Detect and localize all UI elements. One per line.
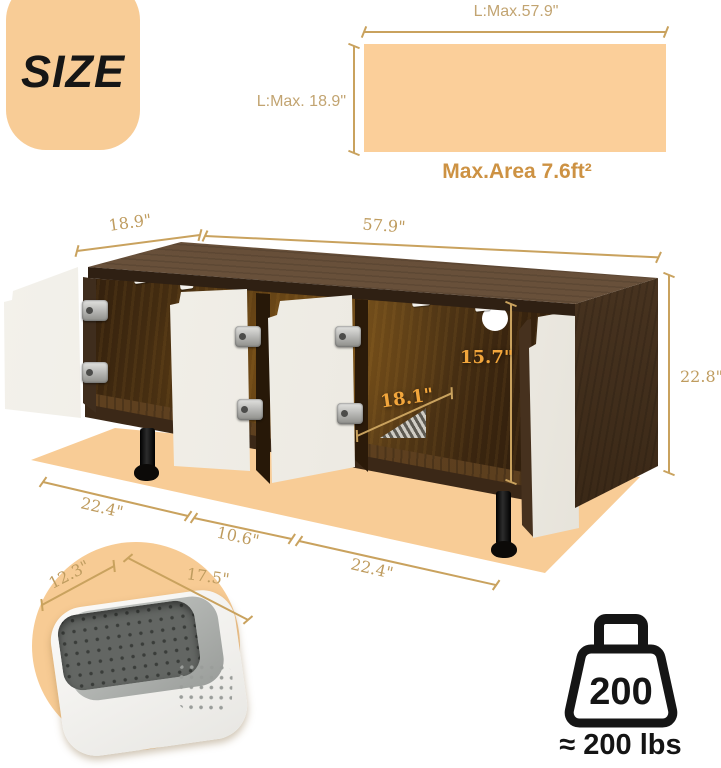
door-hinge (82, 300, 108, 321)
top-surface-area-rect (364, 44, 666, 152)
litter-pan (46, 586, 251, 760)
door-hinge (235, 326, 261, 347)
weight-capacity-label: ≈ 200 lbs (548, 729, 693, 762)
weight-capacity-group: 200 ≈ 200 lbs (548, 612, 693, 762)
size-badge-label: SIZE (21, 32, 125, 98)
dim-inner-height-line (510, 304, 512, 482)
dim-inner-height-label: 15.7" (460, 347, 510, 368)
cabinet-leg-foot (134, 464, 159, 481)
area-length-label: L:Max.57.9" (398, 3, 634, 21)
dim-height-label: 22.8" (680, 367, 721, 386)
area-depth-label: L:Max. 18.9" (236, 93, 346, 111)
litter-pan-drain-holes (176, 662, 233, 711)
product-size-infographic: SIZE L:Max.57.9" L:Max. 18.9" Max.Area 7… (0, 0, 721, 768)
size-badge: SIZE (6, 0, 140, 150)
area-length-dim-line (364, 31, 666, 33)
cabinet-leg (496, 491, 511, 545)
weight-icon: 200 (548, 612, 693, 730)
door-hinge (82, 362, 108, 383)
door-hinge (237, 399, 263, 420)
dim-top-depth-label: 18.9" (99, 209, 161, 236)
cabinet-leg-foot (491, 541, 517, 558)
max-area-label: Max.Area 7.6ft² (398, 160, 636, 184)
dim-height-line (668, 275, 670, 473)
area-depth-dim-line (353, 46, 355, 153)
weight-icon-value: 200 (589, 671, 652, 713)
door-hinge (337, 403, 363, 424)
dim-top-length-label: 57.9" (351, 214, 416, 237)
door-hinge (335, 326, 361, 347)
